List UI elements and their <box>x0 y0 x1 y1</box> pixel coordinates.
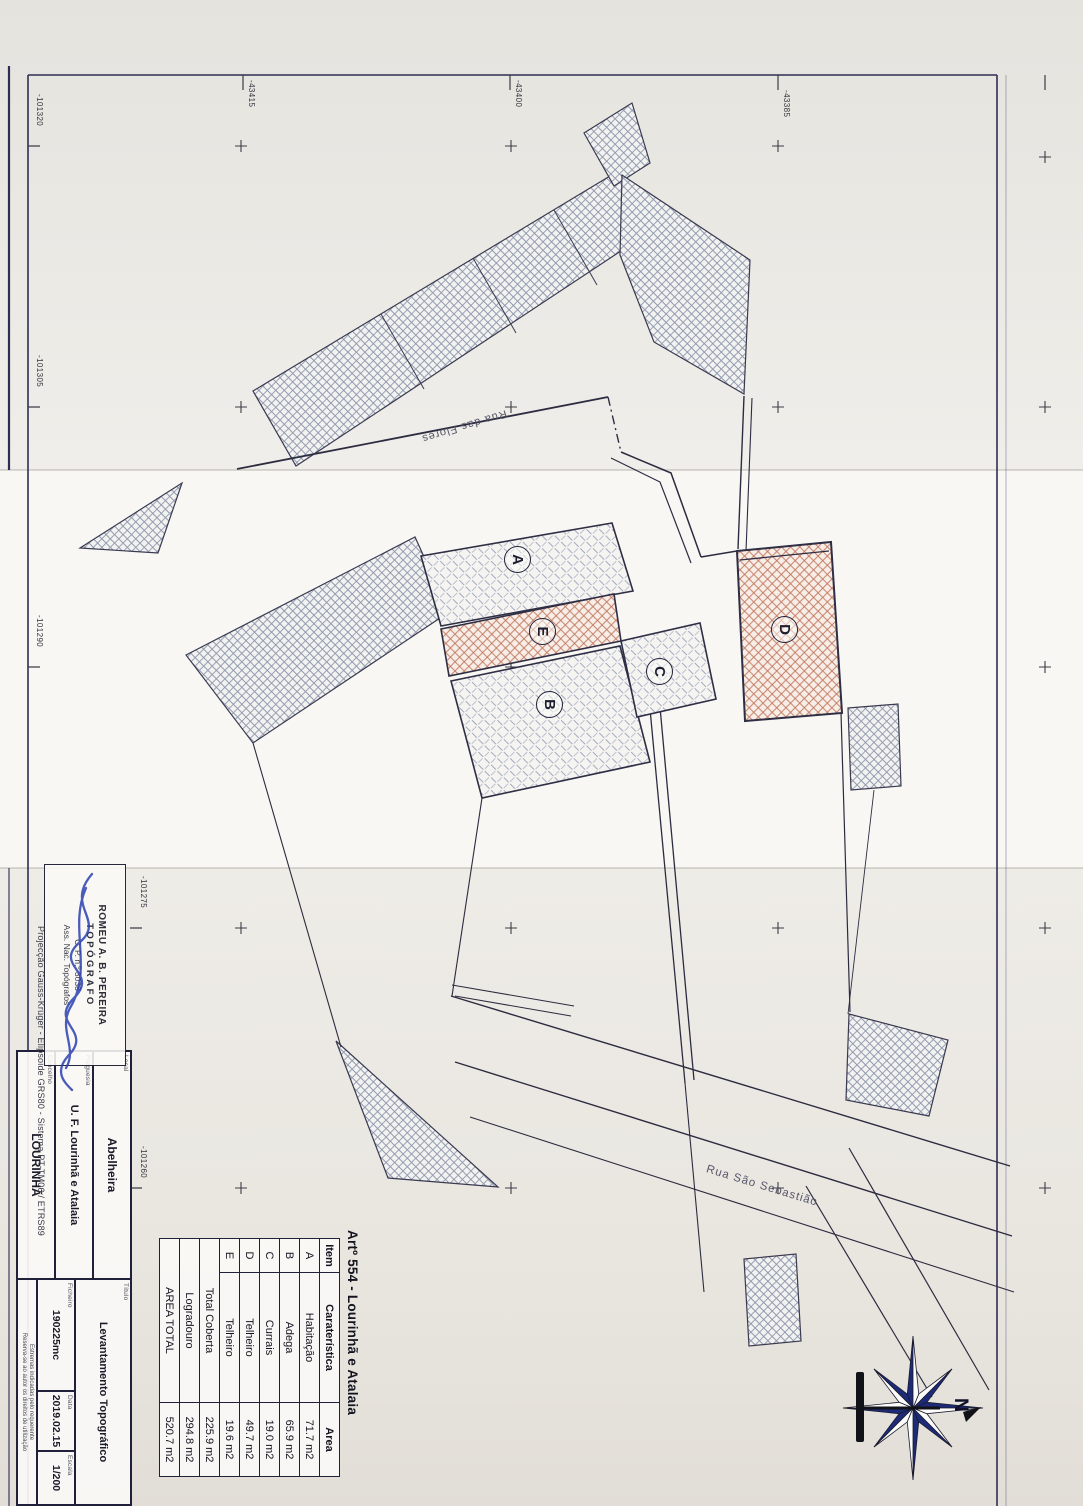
title-block-meta-row: Ficheiro 190225mc Data 2019.02.15 Escala… <box>37 1279 75 1505</box>
cell-caracteristica: Adega <box>280 1273 300 1403</box>
cell-caracteristica: Telheiro <box>240 1273 260 1403</box>
title-block-notes: Estremas indicadas pelo requerente Reser… <box>17 1279 37 1505</box>
table-row: E Telheiro 19.6 m2 <box>220 1239 240 1477</box>
note-reserva: Reserva-se ao autor os direitos de utili… <box>20 1280 28 1504</box>
table-row: B Adega 65.9 m2 <box>280 1239 300 1477</box>
field-escala-label: Escala <box>66 1455 73 1476</box>
summary-label: Logradouro <box>180 1239 200 1403</box>
summary-row-area-total: AREA TOTAL 520.7 m2 <box>160 1239 180 1477</box>
grid-label-top-1: -43415 <box>247 80 256 107</box>
neighbour-band-north-tip <box>584 103 650 186</box>
areas-col-caracteristica: Caraterística <box>320 1273 340 1403</box>
cell-area: 49.7 m2 <box>240 1403 260 1477</box>
summary-area: 520.7 m2 <box>160 1403 180 1477</box>
cell-item: B <box>280 1239 300 1273</box>
table-row: A Habitação 71.7 m2 <box>300 1239 320 1477</box>
compass-bar <box>856 1372 864 1442</box>
summary-area: 225.9 m2 <box>200 1403 220 1477</box>
cell-area: 19.6 m2 <box>220 1403 240 1477</box>
neighbour-band-west <box>186 537 449 743</box>
cell-area: 65.9 m2 <box>280 1403 300 1477</box>
table-row: C Currais 19.0 m2 <box>260 1239 280 1477</box>
north-label: N <box>950 1398 971 1412</box>
building-label-D: D <box>771 616 798 643</box>
cell-item: D <box>240 1239 260 1273</box>
summary-label: AREA TOTAL <box>160 1239 180 1403</box>
areas-col-item: Item <box>320 1239 340 1273</box>
field-data: Data 2019.02.15 <box>37 1391 75 1451</box>
cell-area: 19.0 m2 <box>260 1403 280 1477</box>
field-titulo: Título Levantamento Topográfico <box>75 1279 131 1505</box>
field-escala-value: 1/200 <box>50 1465 62 1491</box>
field-data-value: 2019.02.15 <box>50 1395 62 1448</box>
neighbour-band-north <box>253 170 648 466</box>
plan-title: Artº 554 - Lourinhã e Atalaia <box>345 1230 360 1506</box>
cell-item: E <box>220 1239 240 1273</box>
neighbour-triangle-south <box>336 1041 498 1187</box>
cell-item: A <box>300 1239 320 1273</box>
neighbour-block-southeast <box>846 1014 948 1116</box>
field-titulo-label: Título <box>122 1283 129 1300</box>
areas-col-area: Area <box>320 1403 340 1477</box>
table-row: D Telheiro 49.7 m2 <box>240 1239 260 1477</box>
building-label-E: E <box>529 618 556 645</box>
grid-label-left-3: -101290 <box>35 615 44 647</box>
field-ficheiro-value: 190225mc <box>50 1310 62 1360</box>
grid-label-top-3: -43385 <box>782 90 791 117</box>
field-escala: Escala 1/200 <box>37 1451 75 1505</box>
grid-label-left-1: -101320 <box>35 94 44 126</box>
cell-caracteristica: Telheiro <box>220 1273 240 1403</box>
summary-row-total-coberta: Total Coberta 225.9 m2 <box>200 1239 220 1477</box>
neighbour-triangle-west <box>80 483 182 553</box>
field-titulo-value: Levantamento Topográfico <box>97 1322 109 1462</box>
building-label-B: B <box>536 691 563 718</box>
summary-area: 294.8 m2 <box>180 1403 200 1477</box>
note-estremas: Estremas indicadas pelo requerente <box>27 1280 35 1504</box>
areas-table-header-row: Item Caraterística Area <box>320 1239 340 1477</box>
field-ficheiro: Ficheiro 190225mc <box>37 1279 75 1391</box>
areas-table: Item Caraterística Area A Habitação 71.7… <box>159 1238 340 1477</box>
neighbour-small-east <box>848 704 901 790</box>
cell-caracteristica: Currais <box>260 1273 280 1403</box>
grid-label-left-5: -101260 <box>139 1146 148 1178</box>
building-label-C: C <box>646 658 673 685</box>
cell-caracteristica: Habitação <box>300 1273 320 1403</box>
neighbour-block-northeast <box>620 175 750 394</box>
cell-item: C <box>260 1239 280 1273</box>
neighbour-block-south <box>744 1254 801 1346</box>
summary-label: Total Coberta <box>200 1239 220 1403</box>
title-block-right-column: Título Levantamento Topográfico Ficheiro… <box>17 1279 131 1505</box>
compass-rose: N <box>843 1336 983 1480</box>
scanned-survey-sheet: { "plan": { "title": "Artº 554 - Lourinh… <box>0 0 1083 1506</box>
parcel-buildings <box>421 523 842 798</box>
field-data-label: Data <box>66 1395 73 1410</box>
building-label-A: A <box>504 546 531 573</box>
cell-area: 71.7 m2 <box>300 1403 320 1477</box>
field-ficheiro-label: Ficheiro <box>66 1283 73 1308</box>
grid-label-left-2: -101305 <box>35 355 44 387</box>
summary-row-logradouro: Logradouro 294.8 m2 <box>180 1239 200 1477</box>
grid-label-top-2: -43400 <box>514 80 523 107</box>
areas-table-block: Artº 554 - Lourinhã e Atalaia Item Carat… <box>136 1228 360 1506</box>
signature-scribble <box>28 858 148 1148</box>
